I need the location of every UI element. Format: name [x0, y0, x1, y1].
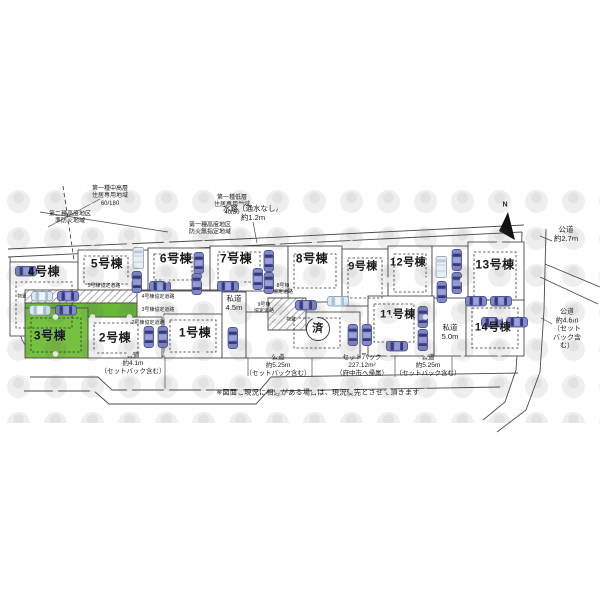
sold-circle [307, 318, 330, 341]
site-plan: 第一種中高層 住居専用地域 60/180 第一種低層 住居専用地域 40/80 … [0, 0, 600, 600]
plan-drawing [0, 0, 600, 600]
lot-3-highlight [25, 308, 88, 358]
